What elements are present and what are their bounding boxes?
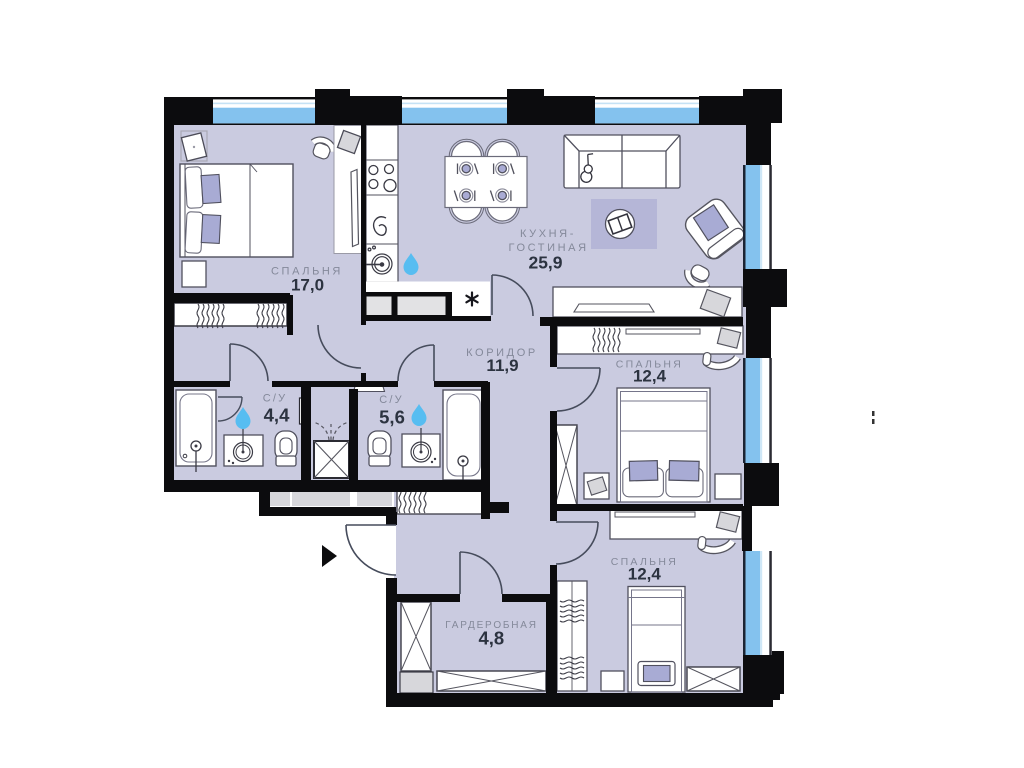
svg-text:С/У: С/У <box>263 393 288 405</box>
svg-text:5,6: 5,6 <box>379 407 405 428</box>
svg-text:4,4: 4,4 <box>264 405 290 426</box>
svg-text:25,9: 25,9 <box>528 253 562 273</box>
svg-text:11,9: 11,9 <box>486 356 518 375</box>
svg-text:КУХНЯ-: КУХНЯ- <box>520 228 576 240</box>
svg-text:4,8: 4,8 <box>478 628 504 649</box>
svg-text:С/У: С/У <box>379 394 404 406</box>
svg-text:17,0: 17,0 <box>291 276 324 295</box>
svg-text:12,4: 12,4 <box>628 565 662 584</box>
svg-text:12,4: 12,4 <box>633 367 667 386</box>
